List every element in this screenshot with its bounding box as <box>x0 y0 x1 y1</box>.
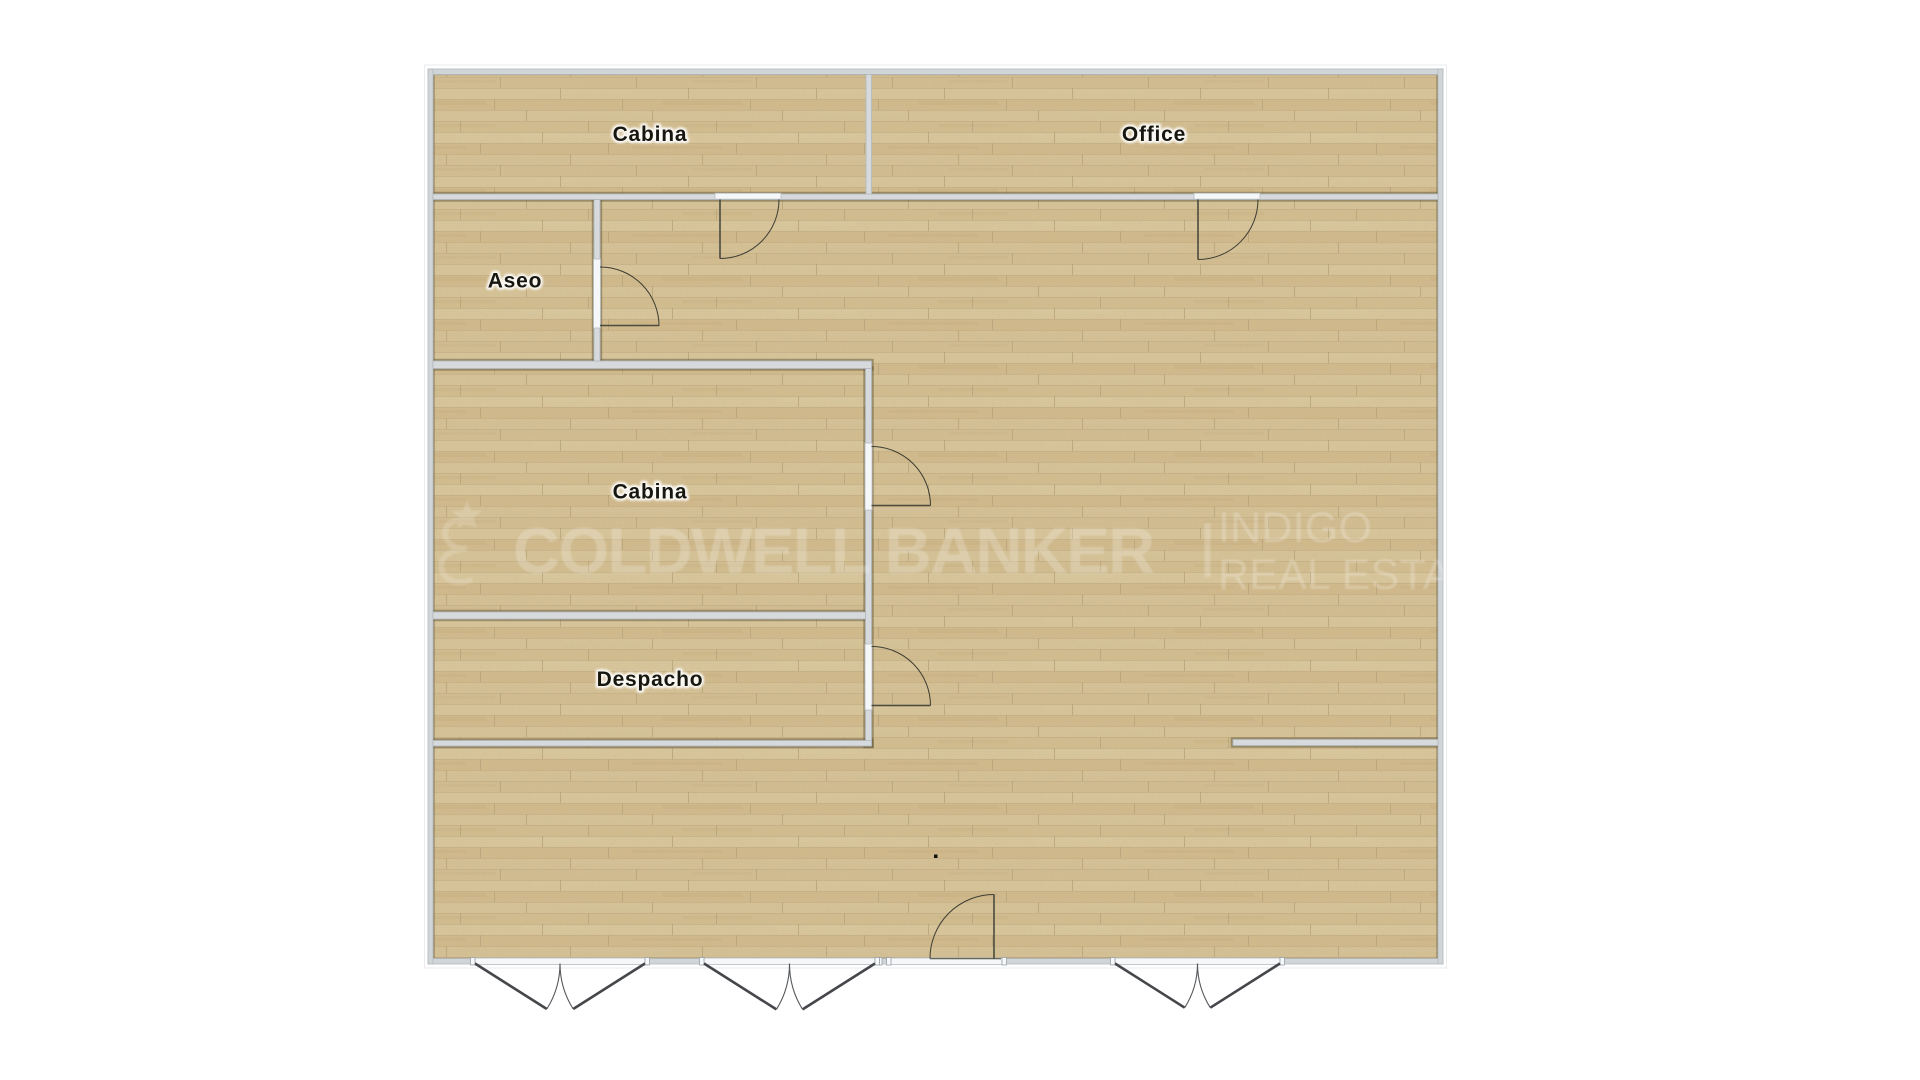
svg-text:Despacho: Despacho <box>597 668 704 691</box>
svg-text:INDIGO: INDIGO <box>1218 504 1372 552</box>
svg-text:Office: Office <box>1122 123 1186 146</box>
svg-text:Cabina: Cabina <box>613 481 688 504</box>
svg-text:Cabina: Cabina <box>613 123 688 146</box>
svg-text:Aseo: Aseo <box>488 270 543 293</box>
svg-text:COLDWELL BANKER: COLDWELL BANKER <box>513 514 1154 587</box>
